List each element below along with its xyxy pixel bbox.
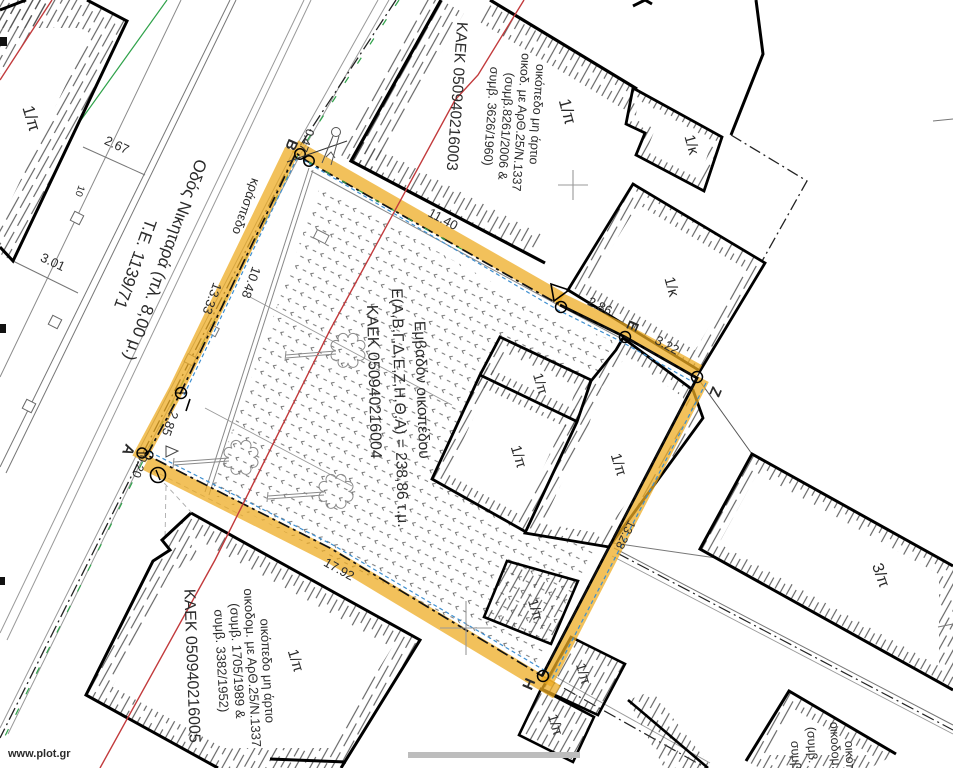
svg-text:www.plot.gr: www.plot.gr (7, 748, 71, 760)
